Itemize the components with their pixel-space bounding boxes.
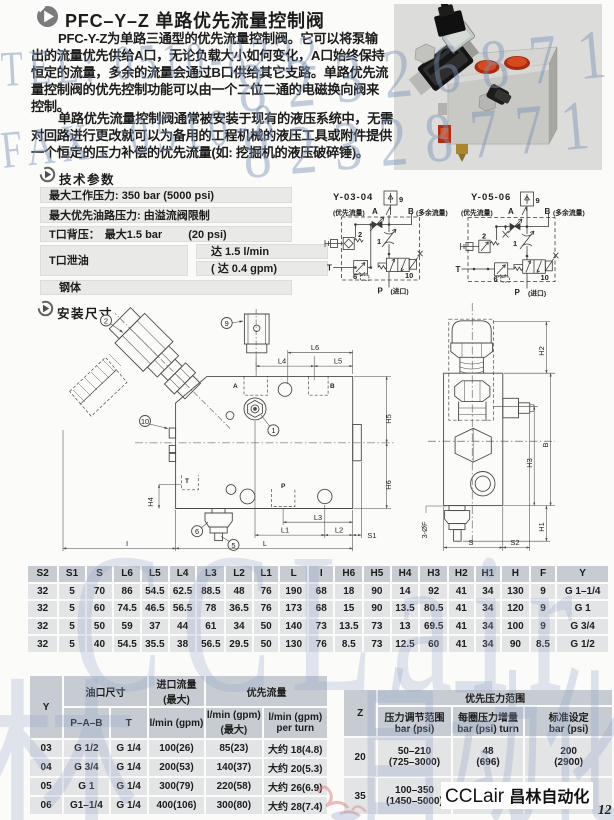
svg-text:10: 10 — [541, 273, 549, 282]
svg-text:A: A — [233, 383, 238, 390]
svg-text:3-ØF: 3-ØF — [420, 521, 429, 539]
svg-text:B: B — [408, 207, 414, 216]
svg-text:(优先流量): (优先流量) — [461, 208, 493, 217]
svg-text:(进口): (进口) — [391, 287, 409, 296]
svg-text:S1: S1 — [367, 531, 376, 540]
svg-text:H1: H1 — [537, 522, 546, 532]
svg-text:6: 6 — [195, 527, 199, 536]
svg-text:1: 1 — [377, 237, 381, 246]
svg-text:9: 9 — [536, 196, 540, 205]
svg-text:L2: L2 — [335, 526, 343, 535]
svg-text:A: A — [372, 207, 378, 216]
svg-text:H4: H4 — [146, 497, 155, 507]
svg-text:L1: L1 — [281, 526, 289, 535]
svg-text:T: T — [456, 265, 461, 274]
svg-text:(多余流量): (多余流量) — [416, 208, 448, 217]
svg-text:H2: H2 — [537, 346, 546, 356]
svg-text:1: 1 — [271, 426, 275, 435]
svg-text:(进口): (进口) — [528, 289, 546, 298]
svg-text:Y-05-06: Y-05-06 — [471, 192, 511, 203]
svg-text:S2: S2 — [510, 538, 519, 547]
svg-text:10: 10 — [405, 271, 413, 280]
svg-text:T: T — [327, 264, 332, 273]
svg-text:B: B — [541, 442, 550, 447]
svg-text:(多余流量): (多余流量) — [553, 208, 585, 217]
svg-text:6: 6 — [494, 275, 498, 284]
svg-text:P: P — [281, 483, 286, 490]
svg-text:H5: H5 — [384, 414, 393, 424]
svg-text:6: 6 — [353, 272, 357, 281]
svg-text:P: P — [378, 287, 384, 296]
svg-text:1: 1 — [513, 239, 517, 248]
svg-text:H6: H6 — [384, 480, 393, 490]
svg-text:B: B — [330, 383, 335, 390]
svg-text:2: 2 — [482, 232, 486, 241]
svg-text:I: I — [126, 539, 128, 548]
svg-text:(优先流量): (优先流量) — [333, 208, 365, 217]
svg-text:L: L — [263, 539, 267, 548]
svg-text:L6: L6 — [311, 343, 319, 352]
svg-text:10: 10 — [141, 417, 149, 426]
svg-text:9: 9 — [225, 319, 229, 328]
svg-text:2: 2 — [104, 316, 108, 325]
svg-text:S: S — [468, 538, 473, 547]
svg-text:A: A — [508, 207, 514, 216]
svg-text:T: T — [185, 478, 189, 485]
svg-text:L5: L5 — [334, 357, 342, 366]
svg-text:L3: L3 — [314, 513, 322, 522]
svg-text:2: 2 — [358, 230, 362, 239]
svg-text:Y-03-04: Y-03-04 — [333, 192, 373, 203]
svg-text:9: 9 — [399, 195, 403, 204]
svg-text:B: B — [545, 207, 551, 216]
svg-text:L4: L4 — [278, 357, 286, 366]
svg-text:P: P — [515, 288, 521, 297]
